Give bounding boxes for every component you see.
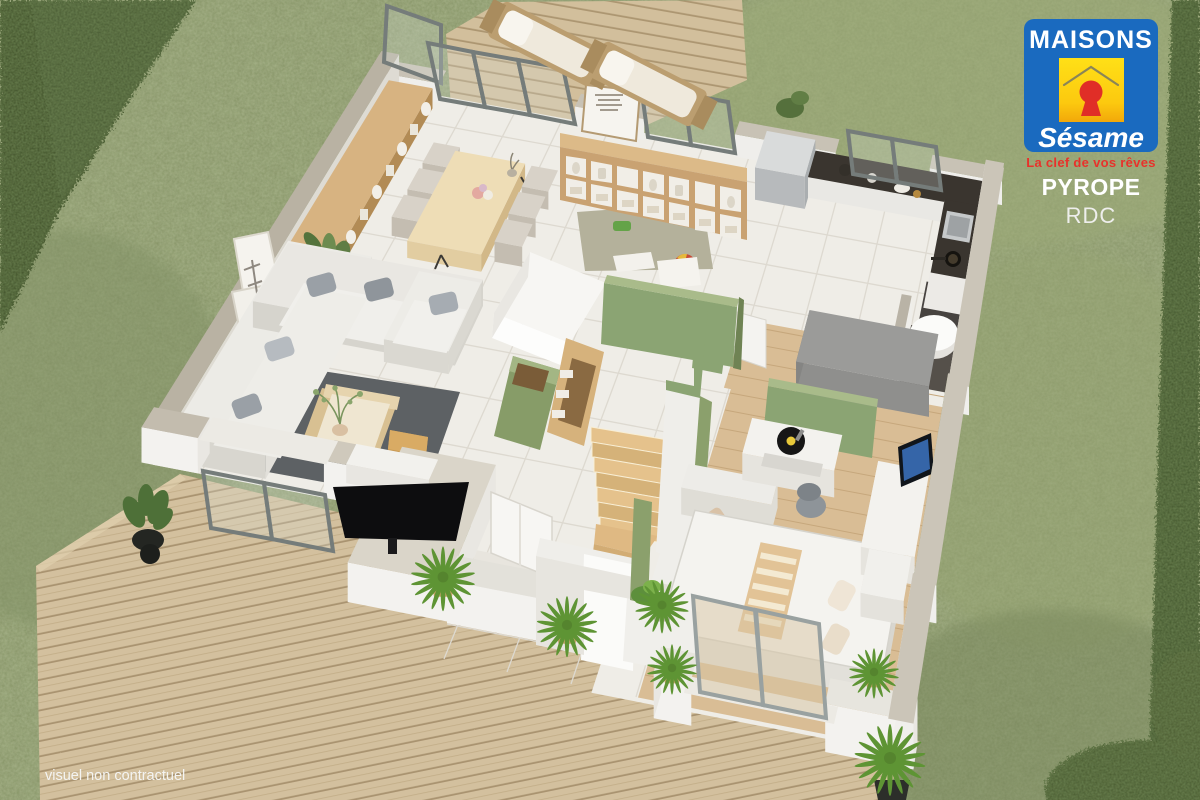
svg-text:MAISONS: MAISONS — [1029, 26, 1153, 54]
svg-text:visuel non contractuel: visuel non contractuel — [45, 768, 185, 784]
svg-text:Sésame: Sésame — [1038, 122, 1144, 153]
svg-text:La clef de vos rêves: La clef de vos rêves — [1026, 155, 1156, 170]
svg-text:PYROPE: PYROPE — [1042, 174, 1141, 200]
svg-text:RDC: RDC — [1066, 203, 1117, 228]
